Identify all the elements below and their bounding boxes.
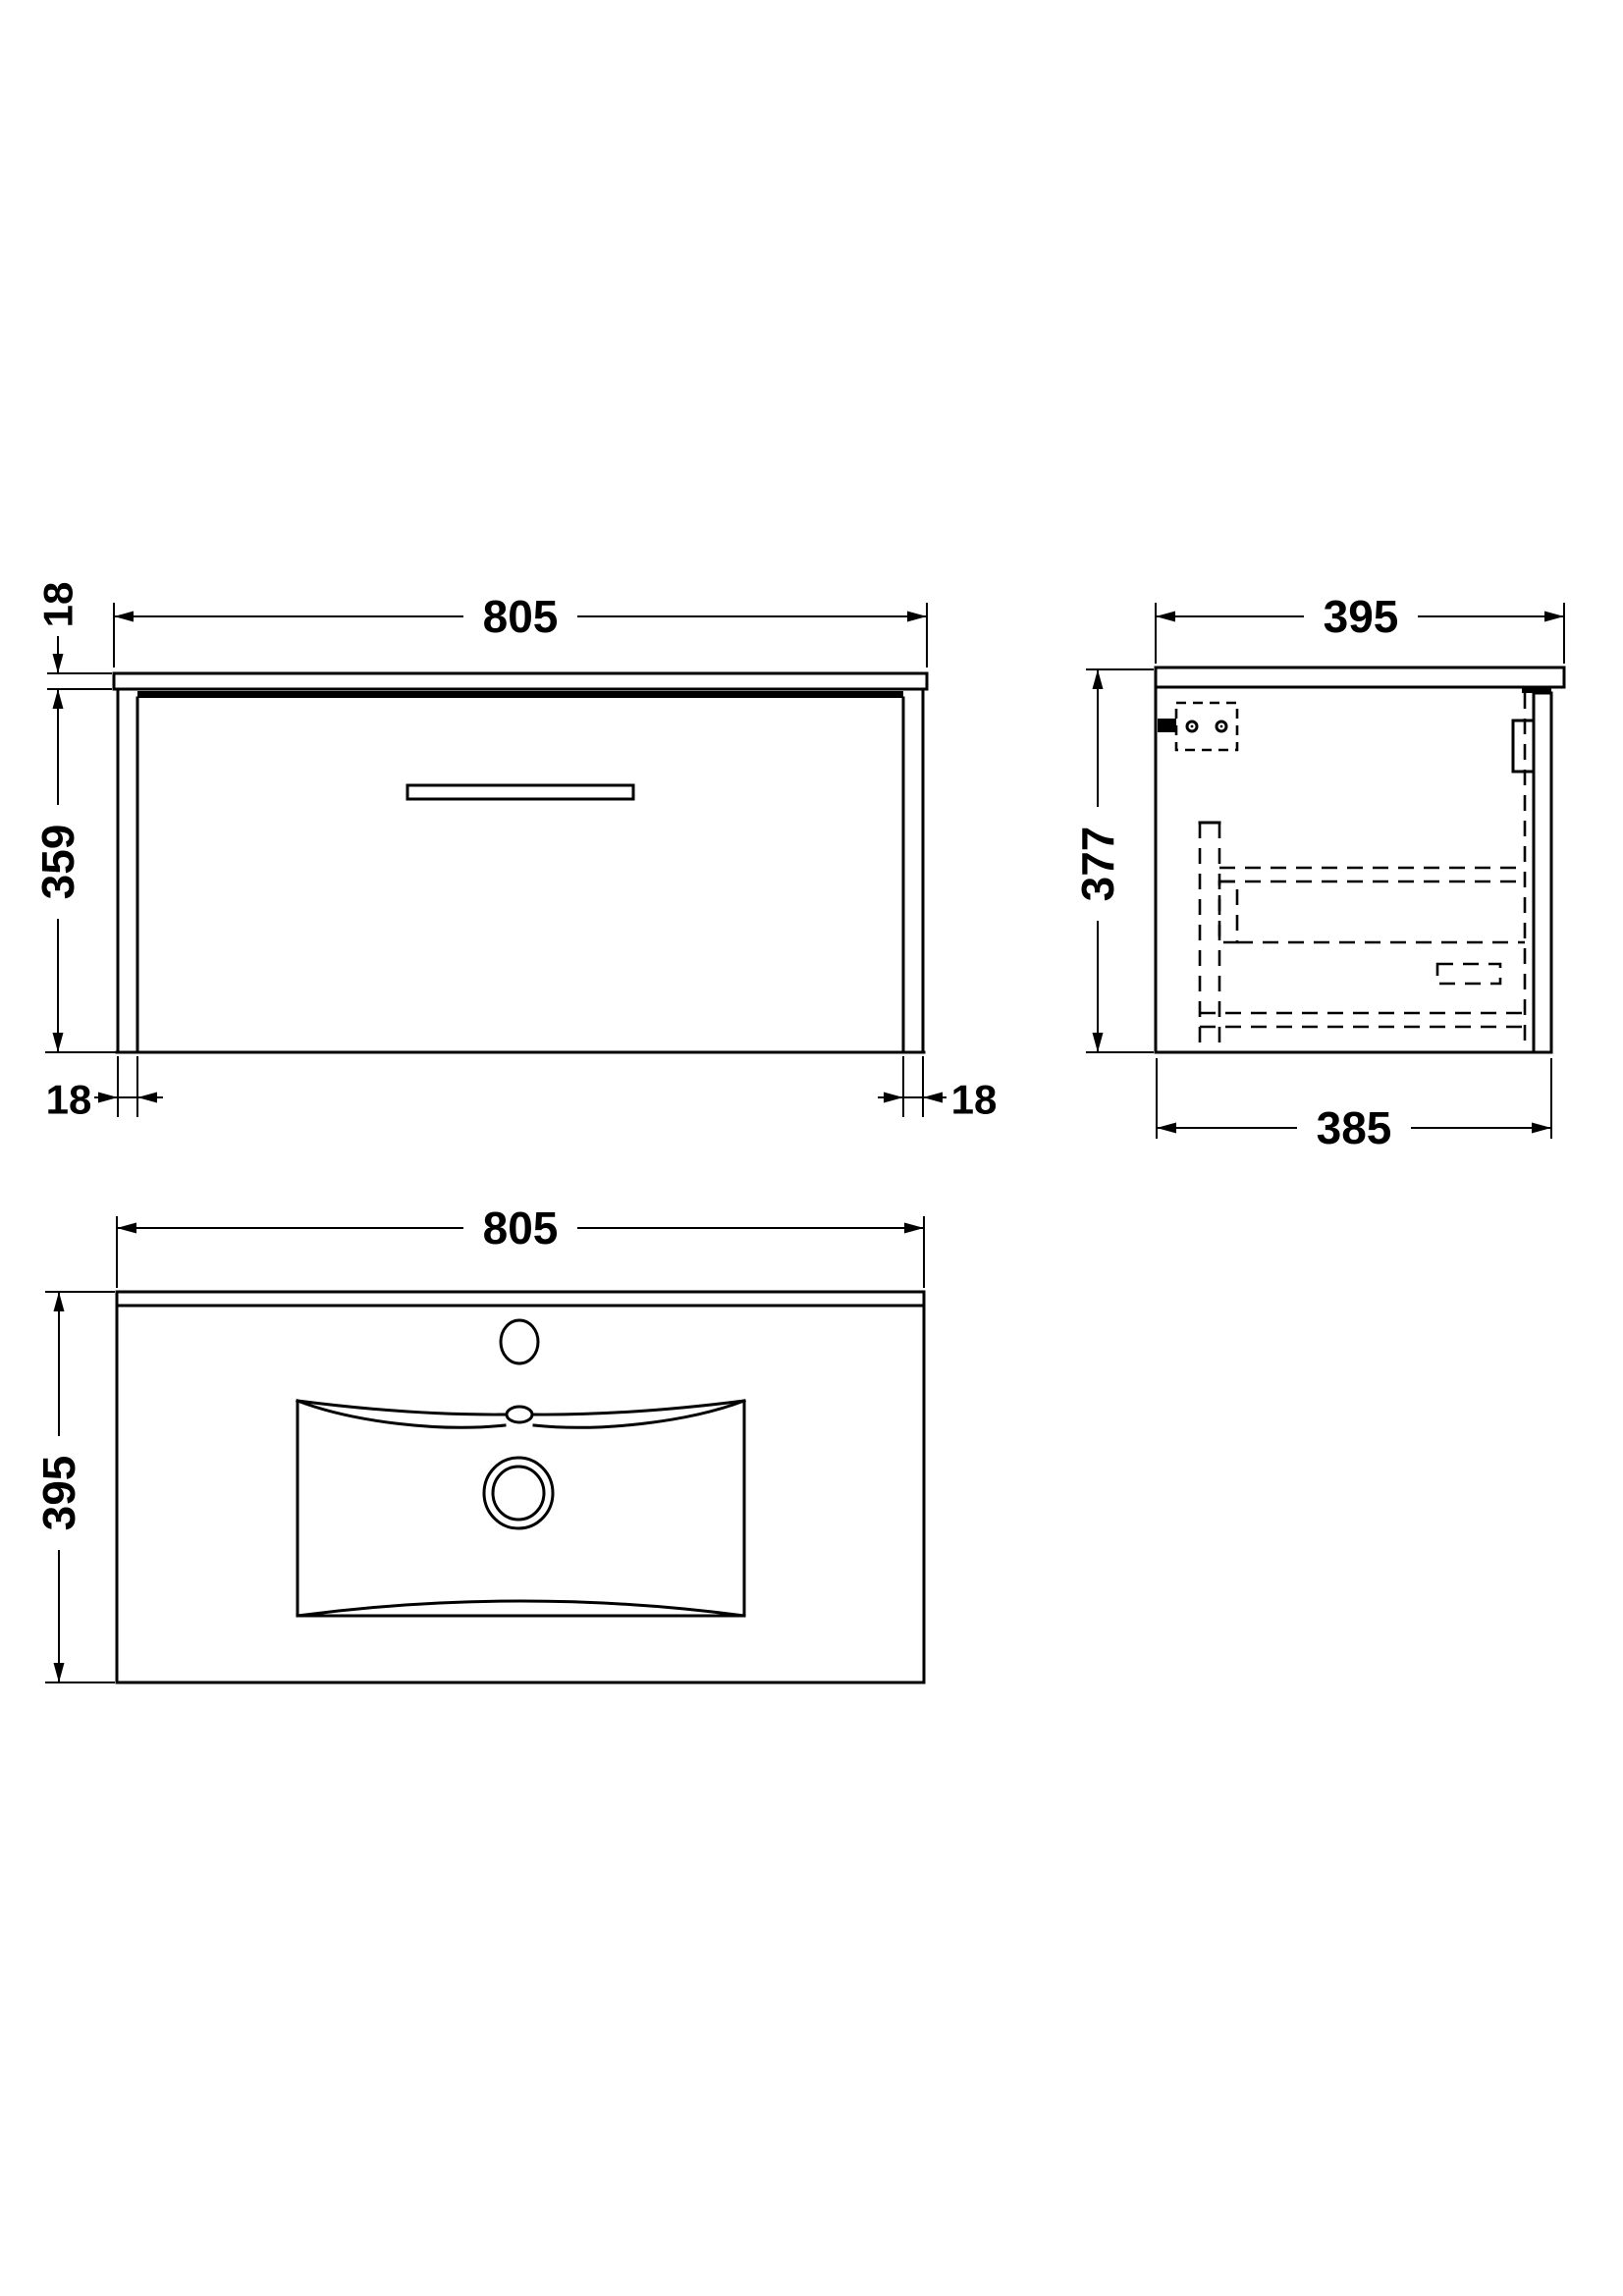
side-drawer-back-panel xyxy=(1219,881,1237,942)
dim-side-cabinet-depth: 385 xyxy=(1157,1058,1551,1153)
side-bracket-screw-left-dot xyxy=(1191,725,1194,728)
dim-side-cabinet-depth-value: 385 xyxy=(1317,1102,1392,1153)
dim-side-height-value: 377 xyxy=(1072,827,1123,902)
side-drawer-front xyxy=(1534,693,1551,1052)
front-worktop-shadow-line xyxy=(137,691,903,698)
dim-plan-depth: 395 xyxy=(33,1292,115,1682)
dim-side-depth: 395 xyxy=(1156,591,1564,664)
dim-front-width-value: 805 xyxy=(483,591,559,642)
side-bracket-hook xyxy=(1158,719,1176,732)
side-view: 395 377 385 xyxy=(1072,591,1564,1153)
front-drawer-handle xyxy=(407,785,633,799)
dim-front-right-panel-value: 18 xyxy=(951,1077,998,1123)
technical-drawing-sheet: 805 18 359 18 xyxy=(0,0,1623,2296)
dim-front-width: 805 xyxy=(114,591,927,667)
side-bracket-screw-right-dot xyxy=(1220,725,1223,728)
front-worktop xyxy=(114,673,927,689)
side-handle-hidden xyxy=(1437,964,1500,984)
plan-view: 805 395 xyxy=(33,1202,924,1682)
tap-hole xyxy=(501,1320,538,1363)
dim-front-cabinet-height: 359 xyxy=(32,689,117,1052)
dim-front-left-panel: 18 xyxy=(46,1056,163,1123)
dim-side-height: 377 xyxy=(1072,669,1154,1052)
dim-front-right-panel: 18 xyxy=(878,1056,997,1123)
dim-front-worktop-thickness-value: 18 xyxy=(35,582,81,628)
dim-plan-width: 805 xyxy=(117,1202,924,1288)
side-runner-notch xyxy=(1513,721,1534,772)
side-worktop xyxy=(1156,667,1564,687)
dim-front-cabinet-height-value: 359 xyxy=(32,825,83,900)
side-wall-bracket xyxy=(1176,703,1237,750)
dim-front-worktop-thickness: 18 xyxy=(35,582,113,689)
dim-plan-depth-value: 395 xyxy=(33,1456,84,1531)
front-view: 805 18 359 18 xyxy=(32,582,997,1123)
dim-front-left-panel-value: 18 xyxy=(46,1077,92,1123)
overflow-hole xyxy=(507,1407,532,1422)
dim-side-depth-value: 395 xyxy=(1324,591,1399,642)
dim-plan-width-value: 805 xyxy=(483,1202,559,1254)
